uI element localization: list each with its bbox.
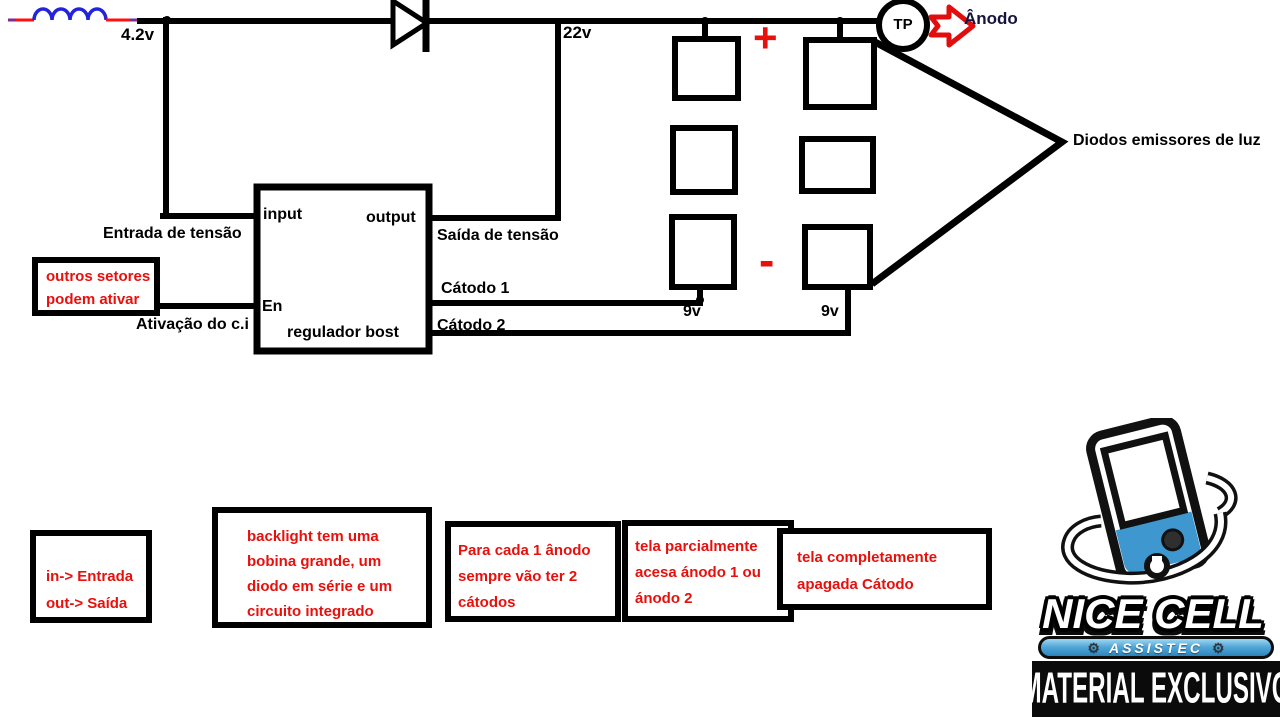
test-point-label: TP — [877, 16, 929, 33]
minus-sign: - — [759, 234, 774, 287]
input-wire — [163, 20, 258, 216]
led-square-2 — [806, 40, 874, 107]
regulator-name-label: regulador bost — [287, 324, 399, 342]
logo-banner: MATERIAL EXCLUSIVO — [1032, 661, 1280, 717]
gear-icon: ⚙ — [1087, 641, 1100, 655]
note-line: apagada Cátodo — [797, 571, 986, 598]
output-wire — [428, 22, 558, 218]
note-line: cátodos — [458, 590, 615, 616]
vin-label: 4.2v — [121, 25, 154, 45]
note-line: bobina grande, um — [247, 549, 426, 574]
led-square-1 — [675, 39, 738, 98]
voltage-9v-right-label: 9v — [821, 303, 839, 321]
anode-label: Ânodo — [964, 9, 1018, 29]
note-in-out: in-> Entrada out-> Saída — [30, 530, 152, 623]
cathode2-label: Cátodo 2 — [437, 317, 505, 335]
note-line: diodo em série e um — [247, 574, 426, 599]
ic-activation-label: Ativação do c.i — [136, 316, 249, 334]
vout-label: 22v — [563, 23, 591, 43]
regulator-output-pin-label: output — [366, 209, 416, 227]
gear-icon: ⚙ — [1212, 641, 1225, 655]
logo-title: NICE CELL — [1027, 590, 1279, 638]
note-line: tela completamente — [797, 544, 986, 571]
led-square-3 — [673, 128, 735, 192]
regulator-input-pin-label: input — [263, 206, 302, 224]
note-line: sempre vão ter 2 — [458, 564, 615, 590]
cathode1-label: Cátodo 1 — [441, 280, 509, 298]
note-line: ánodo 2 — [635, 586, 788, 612]
plus-sign: + — [753, 14, 778, 62]
callout-line-2: podem ativar — [46, 288, 154, 311]
backlight-circuit-diagram: 4.2v 22v input output En regulador bost … — [0, 0, 1280, 720]
nice-cell-logo: NICE CELL ⚙ ASSISTEC ⚙ MATERIAL EXCLUSIV… — [1015, 418, 1280, 720]
inductor-symbol — [8, 9, 144, 20]
note-line: acesa ánodo 1 ou — [635, 560, 788, 586]
note-line: tela parcialmente — [635, 534, 788, 560]
led-square-6 — [805, 227, 870, 287]
callout-line-1: outros setores — [46, 265, 154, 288]
led-chevron — [872, 42, 1062, 284]
note-backlight-parts: backlight tem uma bobina grande, um diod… — [212, 507, 432, 628]
coil-icon — [34, 9, 106, 20]
logo-banner-text: MATERIAL EXCLUSIVO — [1032, 664, 1280, 713]
other-sectors-callout: outros setores podem ativar — [32, 257, 160, 316]
note-line: out-> Saída — [46, 590, 146, 617]
regulator-enable-pin-label: En — [262, 298, 282, 316]
note-line: Para cada 1 ânodo — [458, 538, 615, 564]
led-square-5 — [672, 217, 734, 287]
note-line: in-> Entrada — [46, 563, 146, 590]
note-anode-cathodes: Para cada 1 ânodo sempre vão ter 2 cátod… — [445, 521, 621, 622]
voltage-9v-left-label: 9v — [683, 303, 701, 321]
logo-badge-text: ASSISTEC — [1109, 640, 1203, 656]
led-square-4 — [802, 139, 873, 191]
voltage-output-label: Saída de tensão — [437, 227, 559, 245]
led-emitters-label: Diodos emissores de luz — [1073, 132, 1261, 150]
note-dark-screen: tela completamente apagada Cátodo — [777, 528, 992, 610]
note-line: backlight tem uma — [247, 524, 426, 549]
phone-wrench-icon — [1015, 418, 1280, 598]
note-line: circuito integrado — [247, 599, 426, 624]
logo-badge: ⚙ ASSISTEC ⚙ — [1038, 636, 1274, 659]
note-partial-screen: tela parcialmente acesa ánodo 1 ou ánodo… — [622, 520, 794, 622]
diode-symbol — [393, 0, 427, 52]
voltage-input-label: Entrada de tensão — [103, 225, 242, 243]
